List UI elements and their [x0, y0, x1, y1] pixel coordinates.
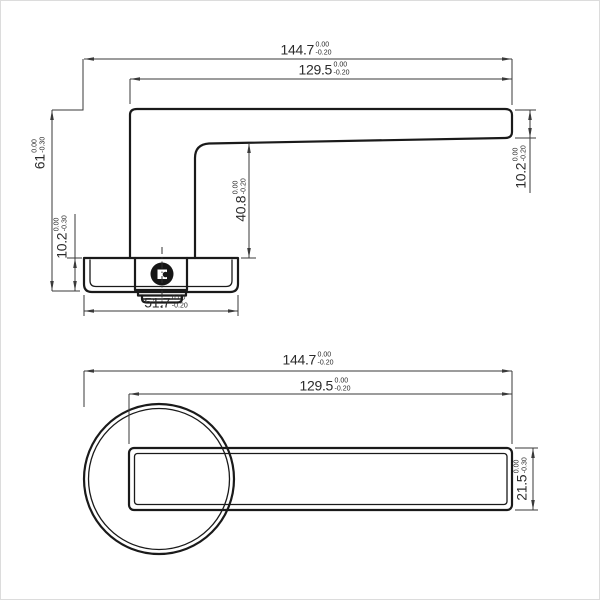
dim-value: 61	[32, 154, 46, 169]
dim-value: 51.7	[144, 295, 170, 309]
drawing-linework	[1, 1, 600, 600]
rose-plan-outer-circle	[84, 404, 234, 554]
dim-tolerance: 0.00 -0.20	[513, 145, 528, 161]
dimension-arrowheads	[50, 57, 535, 510]
technical-drawing: 144.7 0.00 -0.20 129.5 0.00 -0.20 61 0.0…	[0, 0, 600, 600]
dim-tolerance: 0.00 -0.20	[318, 352, 334, 367]
dim-side-rose-height: 10.2 0.00 -0.30	[54, 215, 69, 259]
dim-side-lever-thickness: 10.2 0.00 -0.20	[513, 145, 528, 189]
dim-value: 144.7	[280, 42, 314, 56]
dim-value: 10.2	[54, 233, 68, 259]
dim-plan-lever-width: 21.5 0.00 -0.30	[514, 457, 529, 501]
dim-side-rose-width: 51.7 0.00 -0.20	[144, 295, 188, 310]
dim-plan-lever-length: 129.5 0.00 -0.20	[299, 378, 350, 393]
dim-tolerance: 0.00 -0.20	[316, 42, 332, 57]
dim-value: 129.5	[298, 62, 332, 76]
dim-tolerance: 0.00 -0.30	[514, 457, 529, 473]
dim-side-underside-to-rose: 40.8 0.00 -0.20	[233, 178, 248, 222]
dim-tolerance: 0.00 -0.20	[172, 295, 188, 310]
dim-side-overall-height: 61 0.00 -0.30	[32, 137, 47, 169]
dim-side-lever-length: 129.5 0.00 -0.20	[298, 62, 349, 77]
dim-tolerance: 0.00 -0.30	[32, 137, 47, 153]
dim-value: 40.8	[233, 196, 247, 222]
dim-value: 129.5	[299, 378, 333, 392]
dim-plan-overall-length: 144.7 0.00 -0.20	[282, 352, 333, 367]
lever-side-outline	[130, 109, 512, 258]
rose-plan-inner-circle	[89, 409, 230, 550]
dim-value: 144.7	[282, 352, 316, 366]
dim-value: 10.2	[513, 163, 527, 189]
dim-side-overall-length: 144.7 0.00 -0.20	[280, 42, 331, 57]
lever-plan-inner	[135, 454, 508, 505]
dim-tolerance: 0.00 -0.20	[335, 378, 351, 393]
dim-tolerance: 0.00 -0.30	[54, 215, 69, 231]
dim-tolerance: 0.00 -0.20	[233, 178, 248, 194]
dimension-lines	[52, 59, 538, 510]
dim-value: 21.5	[514, 475, 528, 501]
dim-tolerance: 0.00 -0.20	[334, 62, 350, 77]
lever-plan-outer	[129, 448, 512, 510]
